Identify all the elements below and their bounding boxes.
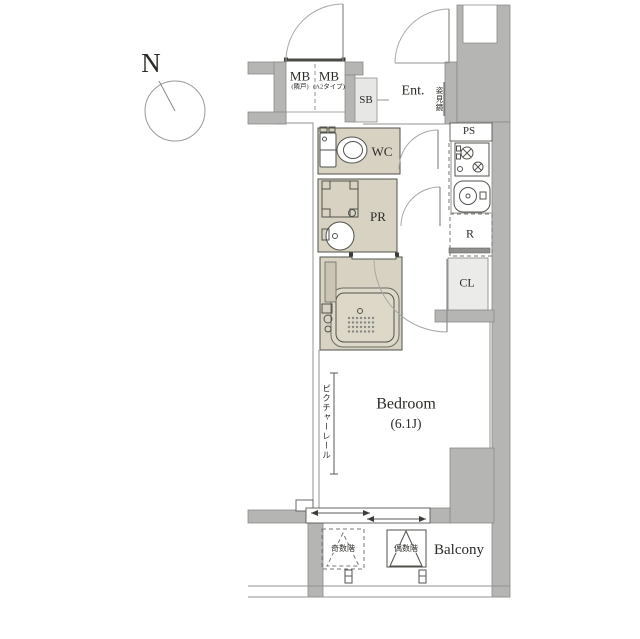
closet-label: CL <box>459 277 474 290</box>
entrance-label: Ent. <box>402 85 425 100</box>
wc-door <box>399 130 438 169</box>
bathroom <box>320 252 402 350</box>
mb-right-note: (A2タイプ) <box>313 84 345 91</box>
ps-label: PS <box>463 126 475 138</box>
picture-rail-label: ピクチャーレール <box>322 384 331 460</box>
mb-left-title: MB <box>290 69 310 83</box>
compass-label: N <box>141 49 161 77</box>
balcony-label: Balcony <box>434 543 484 559</box>
sb-label: SB <box>359 95 372 107</box>
stove-icon <box>455 143 489 176</box>
hatch-even-label: 偶数階 <box>393 545 419 553</box>
bath-door <box>352 252 396 259</box>
mb-right-label: MB (A2タイプ) <box>313 69 345 90</box>
mb-right-title: MB <box>313 69 345 83</box>
pillar-top-right <box>457 5 510 122</box>
mb-door <box>286 4 343 61</box>
sink-icon <box>454 181 490 212</box>
bedroom-label: Bedroom <box>376 397 436 414</box>
bedroom-size-label: (6.1J) <box>390 417 421 431</box>
balcony-stoppers <box>345 570 426 583</box>
mb-left-label: MB (隣戸) <box>290 69 310 90</box>
pr-door <box>401 187 440 226</box>
refrigerator-label: R <box>466 228 474 241</box>
floor-plan: N MB (隣戸) MB (A2タイプ) SB Ent. 姿見鏡 PS WC P… <box>0 0 640 639</box>
pr-label: PR <box>370 210 386 224</box>
hatch-odd-label: 奇数階 <box>330 545 356 553</box>
mb-left-note: (隣戸) <box>290 84 310 91</box>
entrance-door <box>395 9 449 63</box>
mirror-label: 姿見鏡 <box>435 86 443 112</box>
wc-label: WC <box>372 145 393 159</box>
compass-icon <box>145 81 205 141</box>
bathtub-icon <box>331 288 399 347</box>
sliding-window <box>306 508 430 523</box>
floor-plan-drawing <box>0 0 640 639</box>
